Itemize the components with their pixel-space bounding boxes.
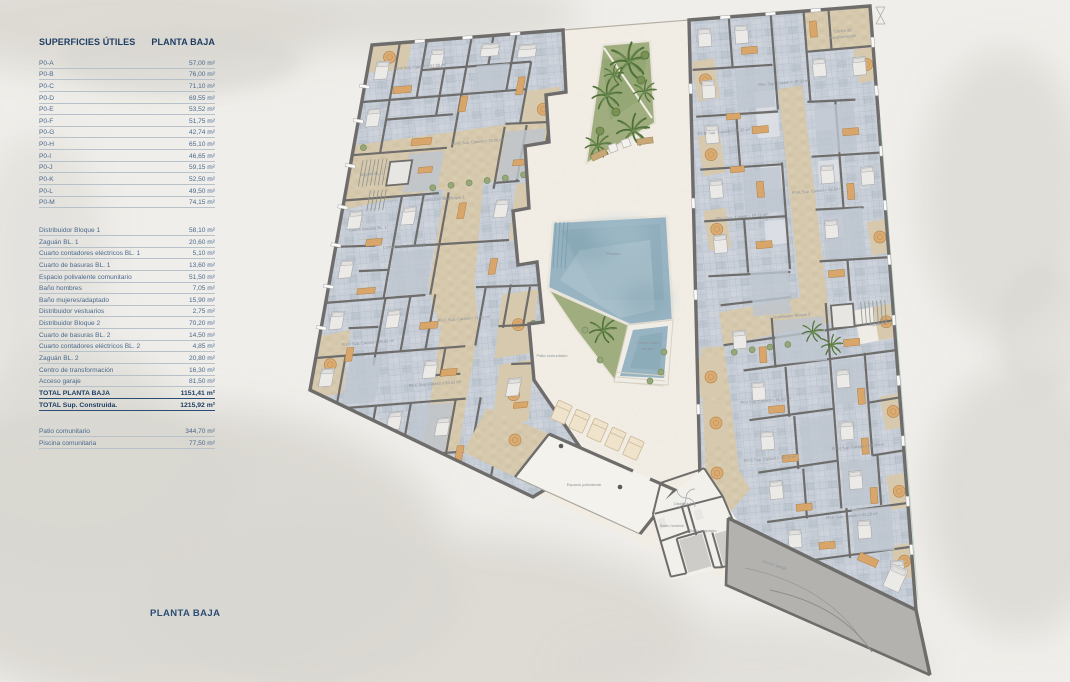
- svg-text:Distribuidor: Distribuidor: [674, 501, 695, 506]
- svg-text:Espacio polivalente: Espacio polivalente: [567, 482, 602, 487]
- svg-text:terrazo: terrazo: [642, 346, 655, 351]
- svg-text:Fuente sobre: Fuente sobre: [636, 340, 660, 345]
- svg-text:Baño hombre: Baño hombre: [660, 523, 685, 528]
- svg-text:Patio comunitario: Patio comunitario: [537, 353, 569, 358]
- svg-text:Piscina: Piscina: [607, 251, 621, 256]
- svg-text:Baño adaptado: Baño adaptado: [689, 528, 717, 533]
